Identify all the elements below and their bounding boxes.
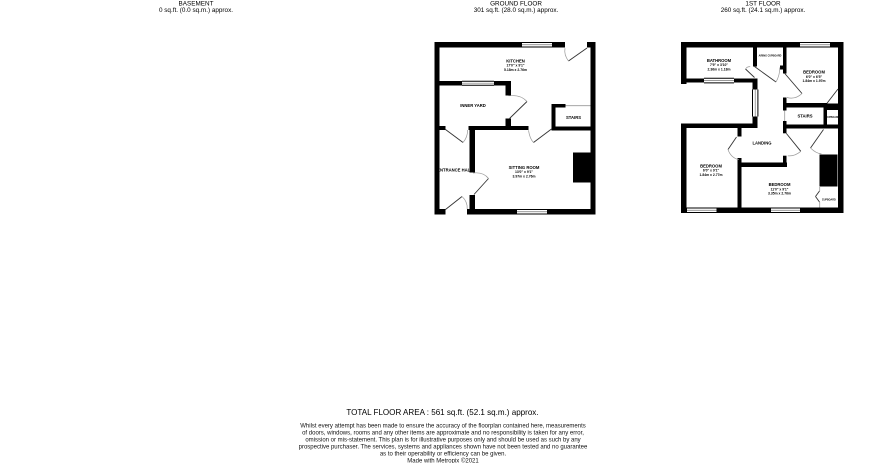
svg-text:AIRING CUPBOARD: AIRING CUPBOARD: [759, 55, 782, 58]
svg-text:5.18m x 2.76m: 5.18m x 2.76m: [504, 68, 527, 72]
svg-text:Made with Metropix ©2021: Made with Metropix ©2021: [407, 457, 479, 463]
svg-text:CUPBOARD: CUPBOARD: [826, 116, 840, 119]
svg-text:STAIRS: STAIRS: [566, 115, 581, 120]
svg-text:INNER YARD: INNER YARD: [460, 103, 486, 108]
svg-text:1.84m x 1.97m: 1.84m x 1.97m: [803, 79, 826, 83]
svg-text:Whilst every attempt has been: Whilst every attempt has been made to en…: [300, 423, 586, 429]
svg-text:CUPBOARD: CUPBOARD: [822, 199, 836, 202]
svg-text:3.97m x 2.76m: 3.97m x 2.76m: [513, 175, 536, 179]
svg-text:1.84m x 2.77m: 1.84m x 2.77m: [700, 173, 723, 177]
svg-text:omission or mis-statement. Thi: omission or mis-statement. This plan is …: [305, 437, 580, 443]
svg-text:3.35m x 2.76m: 3.35m x 2.76m: [768, 192, 791, 196]
svg-text:prospective purchaser. The ser: prospective purchaser. The services, sys…: [299, 444, 588, 450]
svg-text:as to their operability or eff: as to their operability or efficiency ca…: [380, 451, 507, 457]
svg-text:0 sq.ft. (0.0 sq.m.) approx.: 0 sq.ft. (0.0 sq.m.) approx.: [159, 7, 233, 14]
svg-text:STAIRS: STAIRS: [797, 114, 812, 119]
svg-text:260 sq.ft. (24.1 sq.m.) approx: 260 sq.ft. (24.1 sq.m.) approx.: [721, 7, 806, 14]
svg-text:2.36m x 1.18m: 2.36m x 1.18m: [708, 67, 731, 71]
svg-text:LANDING: LANDING: [752, 141, 771, 146]
svg-text:301 sq.ft. (28.0 sq.m.) approx: 301 sq.ft. (28.0 sq.m.) approx.: [474, 7, 559, 14]
svg-text:TOTAL FLOOR AREA : 561 sq.ft.: TOTAL FLOOR AREA : 561 sq.ft. (52.1 sq.m…: [346, 408, 538, 417]
svg-text:of doors, windows, rooms and a: of doors, windows, rooms and any other i…: [302, 430, 584, 436]
svg-text:ENTRANCE HALL: ENTRANCE HALL: [437, 168, 473, 173]
svg-text:SITTING ROOM: SITTING ROOM: [509, 165, 540, 170]
